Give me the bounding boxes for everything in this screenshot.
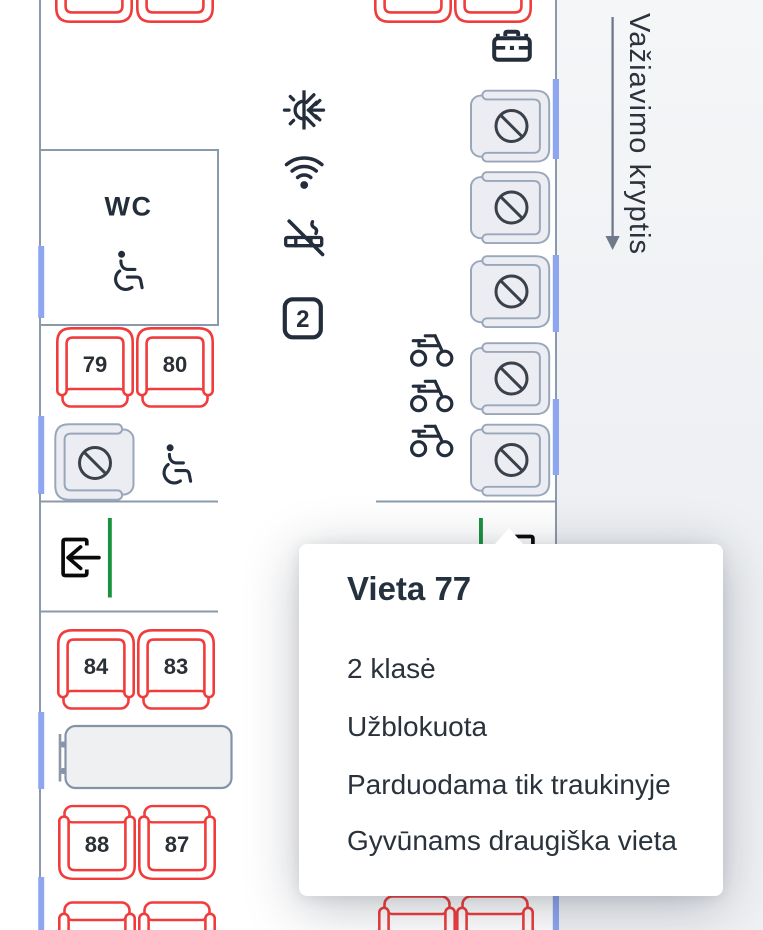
svg-text:WC: WC bbox=[105, 192, 153, 222]
svg-text:88: 88 bbox=[85, 832, 109, 857]
svg-text:83: 83 bbox=[164, 654, 188, 679]
svg-text:79: 79 bbox=[83, 352, 107, 377]
svg-text:80: 80 bbox=[163, 352, 187, 377]
svg-text:84: 84 bbox=[84, 654, 109, 679]
svg-text:2: 2 bbox=[296, 306, 309, 333]
svg-text:87: 87 bbox=[165, 832, 189, 857]
svg-text:Važiavimo kryptis: Važiavimo kryptis bbox=[623, 13, 655, 255]
